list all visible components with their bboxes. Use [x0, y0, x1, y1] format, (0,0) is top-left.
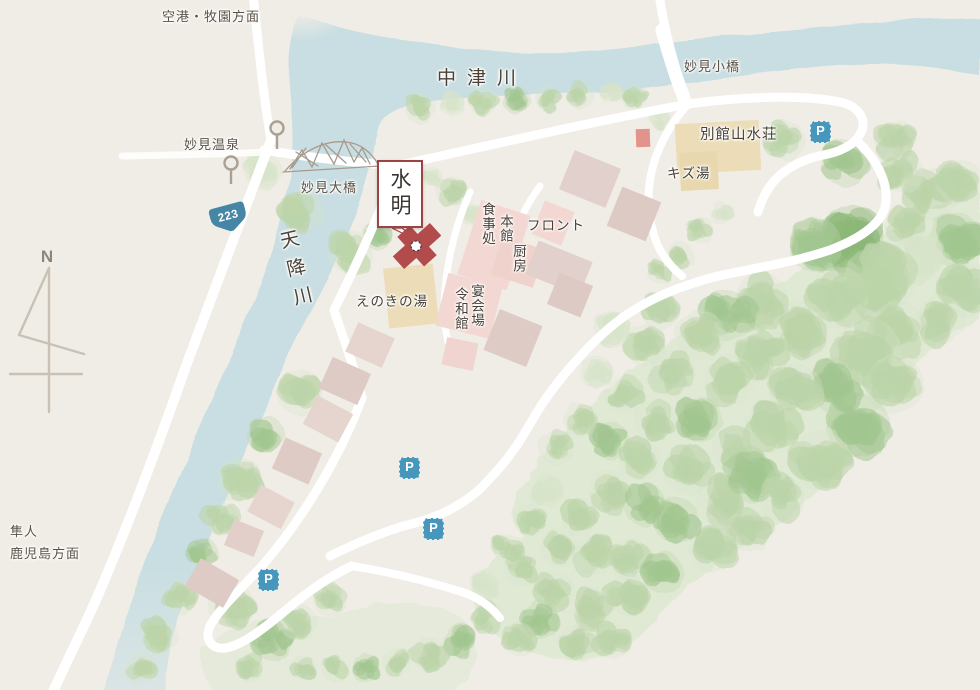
suimei-location-dot — [411, 241, 421, 251]
parking-icon: P — [258, 569, 279, 591]
building-small-red — [636, 129, 651, 147]
onsen-label-myoken: 妙見温泉 — [184, 134, 240, 153]
direction-label-airport: 空港・牧園方面 — [162, 6, 260, 25]
facility-label-kizuyu: キズ湯 — [667, 162, 711, 182]
facility-label-honkan: 本館 — [495, 214, 515, 243]
facility-label-shokuji: 食事処 — [477, 202, 497, 246]
direction-label-kagoshima: 鹿児島方面 — [10, 543, 80, 562]
facility-label-chubo: 厨房 — [508, 244, 528, 273]
parking-icon: P — [810, 121, 831, 143]
bridge-label-ohashi: 妙見大橋 — [301, 177, 357, 196]
compass-n-label: N — [41, 247, 53, 266]
facility-label-front: フロント — [527, 214, 585, 234]
suimei-label-box: 水明 — [377, 160, 423, 228]
facility-label-reiwa: 令和館 — [450, 287, 470, 331]
facility-label-bekkan: 別館山水荘 — [700, 123, 778, 144]
direction-label-hayato: 隼人 — [10, 521, 38, 540]
resort-map: 223 N 空港・牧園方面 中津川 妙見小橋 妙見温泉 妙見大橋 天降川 別館山… — [0, 0, 980, 690]
parking-icon: P — [423, 518, 444, 540]
bridge-label-kobashi: 妙見小橋 — [684, 56, 740, 75]
facility-label-enoki: えのきの湯 — [356, 290, 428, 310]
map-artwork: 223 N — [0, 0, 980, 690]
parking-icon: P — [399, 457, 420, 479]
river-label-nakatsu: 中津川 — [437, 63, 527, 90]
